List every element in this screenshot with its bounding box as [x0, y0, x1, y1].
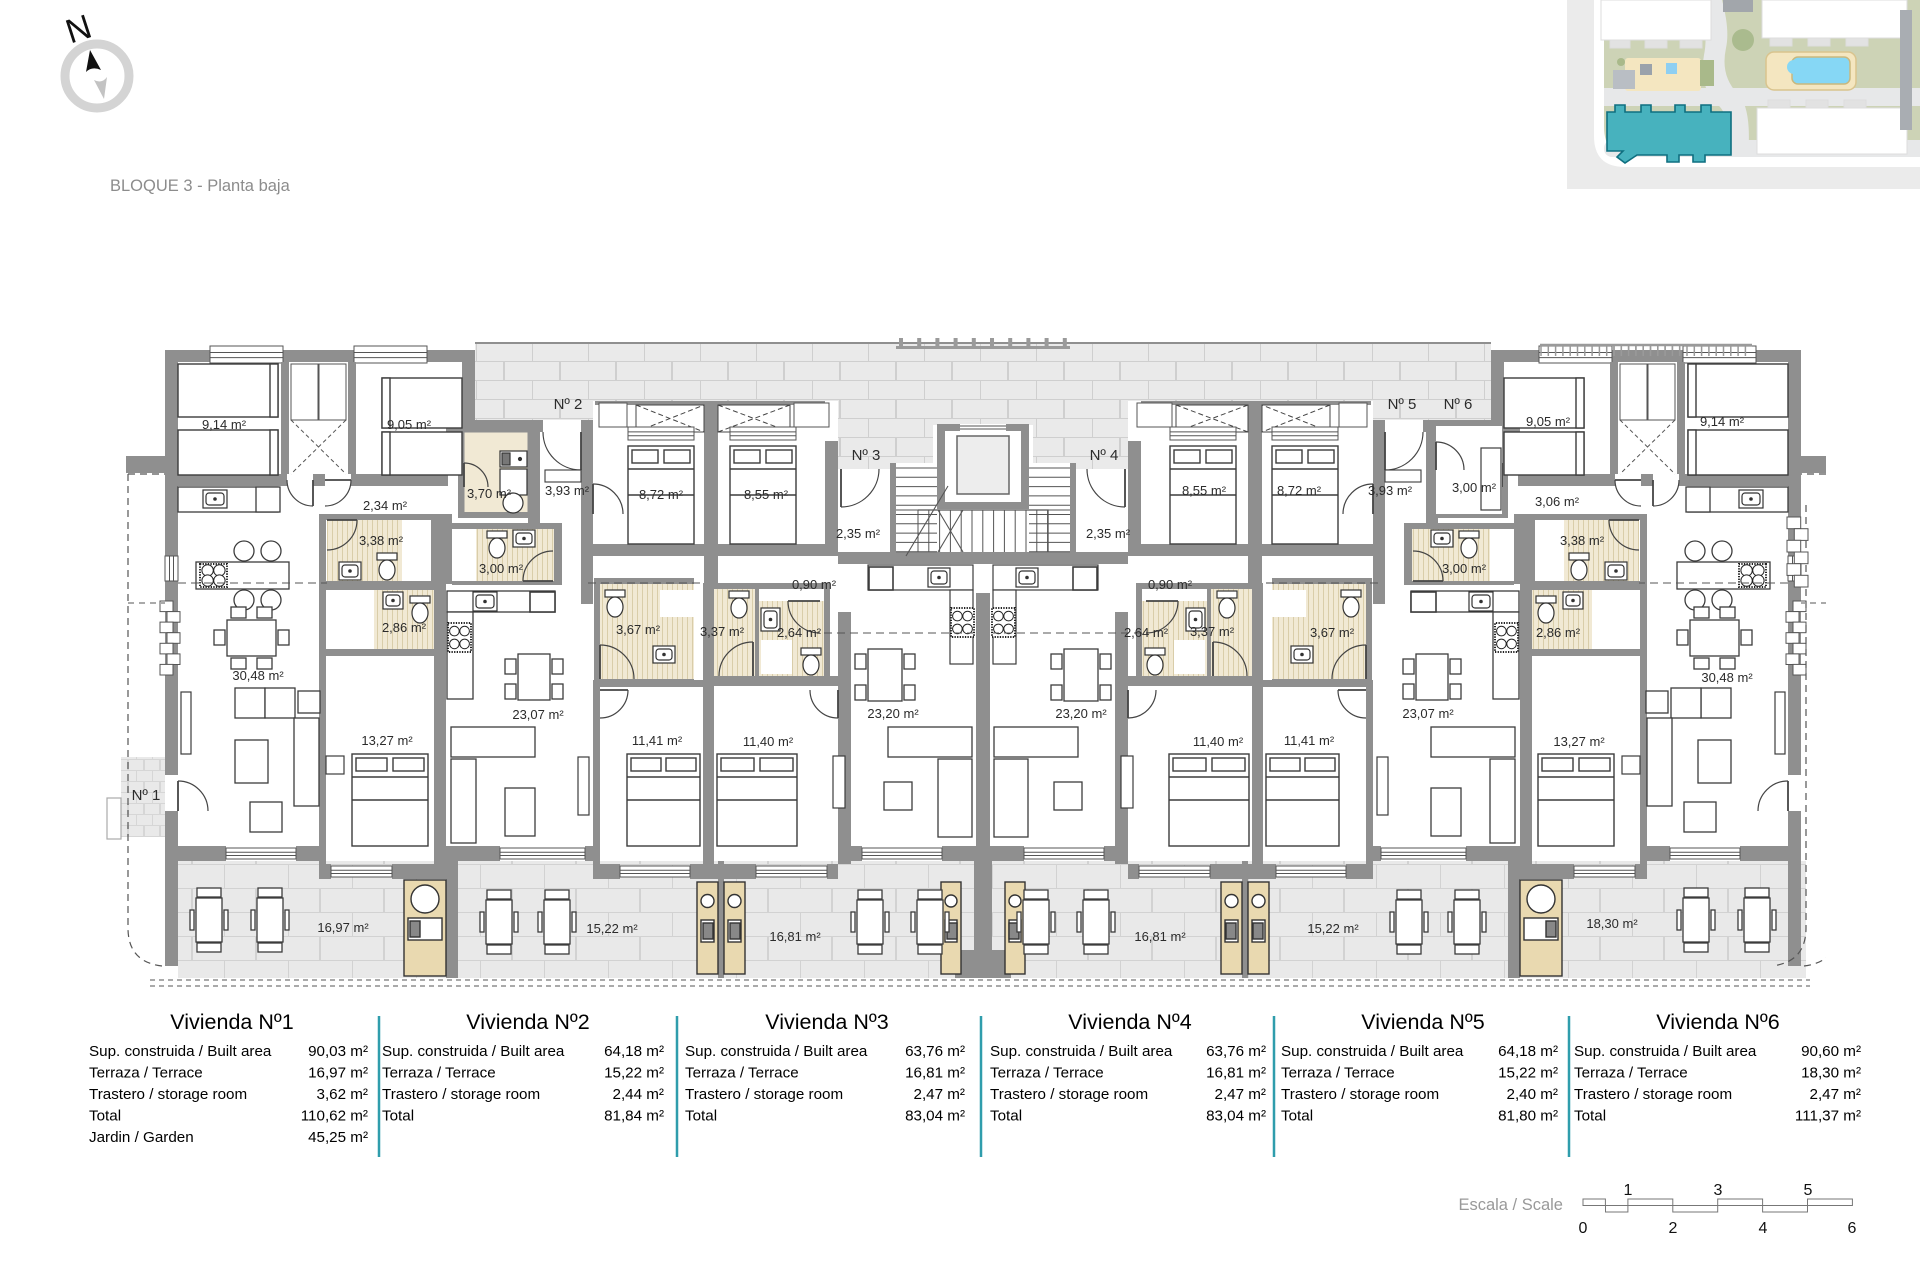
svg-text:Total: Total: [1574, 1108, 1606, 1125]
svg-text:3,70 m²: 3,70 m²: [467, 486, 512, 501]
svg-text:Vivienda Nº3: Vivienda Nº3: [765, 1010, 888, 1034]
svg-text:2,47 m²: 2,47 m²: [1810, 1086, 1862, 1103]
svg-text:Terraza / Terrace: Terraza / Terrace: [1574, 1065, 1688, 1082]
svg-text:23,07 m²: 23,07 m²: [1402, 706, 1454, 721]
svg-text:11,41 m²: 11,41 m²: [1284, 733, 1335, 748]
svg-text:2,47 m²: 2,47 m²: [1215, 1086, 1267, 1103]
svg-text:81,80 m²: 81,80 m²: [1498, 1108, 1558, 1125]
svg-text:8,55 m²: 8,55 m²: [744, 487, 789, 502]
svg-text:Trastero / storage room: Trastero / storage room: [990, 1086, 1148, 1103]
svg-text:Sup. construida / Built area: Sup. construida / Built area: [685, 1043, 868, 1060]
svg-text:Total: Total: [1281, 1108, 1313, 1125]
svg-text:Nº 1: Nº 1: [132, 787, 161, 804]
svg-text:Total: Total: [685, 1108, 717, 1125]
svg-text:11,40 m²: 11,40 m²: [743, 734, 794, 749]
svg-text:83,04 m²: 83,04 m²: [905, 1108, 965, 1125]
svg-text:1: 1: [1624, 1182, 1633, 1199]
svg-text:BLOQUE 3 - Planta baja: BLOQUE 3 - Planta baja: [110, 177, 291, 195]
svg-text:83,04 m²: 83,04 m²: [1206, 1108, 1266, 1125]
svg-text:Vivienda Nº5: Vivienda Nº5: [1361, 1010, 1484, 1034]
svg-text:Trastero / storage room: Trastero / storage room: [1281, 1086, 1439, 1103]
svg-text:3,00 m²: 3,00 m²: [479, 561, 524, 576]
svg-text:Jardin / Garden: Jardin / Garden: [89, 1129, 194, 1146]
svg-text:30,48 m²: 30,48 m²: [232, 668, 284, 683]
svg-text:Sup. construida / Built area: Sup. construida / Built area: [990, 1043, 1173, 1060]
svg-text:2,86 m²: 2,86 m²: [1536, 625, 1581, 640]
svg-text:16,81 m²: 16,81 m²: [1134, 929, 1186, 944]
svg-text:Escala / Scale: Escala / Scale: [1458, 1196, 1563, 1214]
svg-text:Trastero / storage room: Trastero / storage room: [89, 1086, 247, 1103]
svg-text:0,90 m²: 0,90 m²: [1148, 577, 1193, 592]
svg-text:Terraza / Terrace: Terraza / Terrace: [990, 1065, 1104, 1082]
svg-text:0,90 m²: 0,90 m²: [792, 577, 837, 592]
svg-text:16,81 m²: 16,81 m²: [905, 1065, 965, 1082]
svg-text:3,67 m²: 3,67 m²: [616, 622, 661, 637]
svg-text:3: 3: [1714, 1182, 1723, 1199]
svg-text:3,93 m²: 3,93 m²: [545, 483, 590, 498]
svg-text:3,37 m²: 3,37 m²: [1190, 624, 1235, 639]
svg-text:15,22 m²: 15,22 m²: [586, 921, 638, 936]
svg-text:Trastero / storage room: Trastero / storage room: [382, 1086, 540, 1103]
svg-text:Trastero / storage room: Trastero / storage room: [685, 1086, 843, 1103]
svg-text:Sup. construida / Built area: Sup. construida / Built area: [1281, 1043, 1464, 1060]
svg-text:64,18 m²: 64,18 m²: [604, 1043, 664, 1060]
svg-text:90,60 m²: 90,60 m²: [1801, 1043, 1861, 1060]
svg-text:13,27 m²: 13,27 m²: [1553, 734, 1605, 749]
svg-text:15,22 m²: 15,22 m²: [1307, 921, 1359, 936]
svg-text:Vivienda Nº6: Vivienda Nº6: [1656, 1010, 1779, 1034]
svg-text:Terraza / Terrace: Terraza / Terrace: [1281, 1065, 1395, 1082]
svg-text:Nº 5: Nº 5: [1388, 396, 1417, 413]
svg-text:3,67 m²: 3,67 m²: [1310, 625, 1355, 640]
svg-text:2,86 m²: 2,86 m²: [382, 620, 427, 635]
svg-text:8,55 m²: 8,55 m²: [1182, 483, 1227, 498]
svg-text:Terraza / Terrace: Terraza / Terrace: [89, 1065, 203, 1082]
svg-text:18,30 m²: 18,30 m²: [1586, 916, 1638, 931]
svg-text:Nº 2: Nº 2: [554, 396, 583, 413]
svg-text:Sup. construida / Built area: Sup. construida / Built area: [89, 1043, 272, 1060]
svg-text:Total: Total: [382, 1108, 414, 1125]
svg-text:13,27 m²: 13,27 m²: [361, 733, 413, 748]
svg-text:111,37 m²: 111,37 m²: [1795, 1108, 1861, 1125]
svg-text:18,30 m²: 18,30 m²: [1801, 1065, 1861, 1082]
svg-text:9,05 m²: 9,05 m²: [1526, 414, 1571, 429]
svg-text:9,14 m²: 9,14 m²: [1700, 414, 1745, 429]
svg-text:63,76 m²: 63,76 m²: [905, 1043, 965, 1060]
svg-text:2,44 m²: 2,44 m²: [613, 1086, 665, 1103]
svg-text:5: 5: [1804, 1182, 1813, 1199]
svg-text:Nº 6: Nº 6: [1444, 396, 1473, 413]
svg-text:64,18 m²: 64,18 m²: [1498, 1043, 1558, 1060]
svg-text:Vivienda Nº1: Vivienda Nº1: [170, 1010, 293, 1034]
svg-text:3,38 m²: 3,38 m²: [359, 533, 404, 548]
svg-text:6: 6: [1848, 1220, 1857, 1237]
svg-text:3,37 m²: 3,37 m²: [700, 624, 745, 639]
svg-text:3,00 m²: 3,00 m²: [1452, 480, 1497, 495]
svg-text:23,07 m²: 23,07 m²: [512, 707, 564, 722]
svg-text:Total: Total: [89, 1108, 121, 1125]
svg-text:Vivienda Nº2: Vivienda Nº2: [466, 1010, 589, 1034]
svg-text:8,72 m²: 8,72 m²: [639, 487, 684, 502]
svg-text:110,62 m²: 110,62 m²: [301, 1108, 368, 1125]
svg-text:3,38 m²: 3,38 m²: [1560, 533, 1605, 548]
svg-text:9,14 m²: 9,14 m²: [202, 417, 247, 432]
svg-text:23,20 m²: 23,20 m²: [1055, 706, 1107, 721]
svg-text:2,64 m²: 2,64 m²: [1124, 625, 1169, 640]
svg-text:2,34 m²: 2,34 m²: [363, 498, 408, 513]
svg-text:16,97 m²: 16,97 m²: [317, 920, 369, 935]
svg-text:30,48 m²: 30,48 m²: [1701, 670, 1753, 685]
svg-text:Vivienda Nº4: Vivienda Nº4: [1068, 1010, 1191, 1034]
svg-text:9,05 m²: 9,05 m²: [387, 417, 432, 432]
svg-text:N: N: [61, 8, 96, 52]
svg-text:3,06 m²: 3,06 m²: [1535, 494, 1580, 509]
svg-text:90,03 m²: 90,03 m²: [308, 1043, 368, 1060]
svg-text:81,84 m²: 81,84 m²: [604, 1108, 664, 1125]
svg-text:8,72 m²: 8,72 m²: [1277, 483, 1322, 498]
svg-text:2,40 m²: 2,40 m²: [1507, 1086, 1559, 1103]
svg-text:4: 4: [1759, 1220, 1768, 1237]
svg-text:Total: Total: [990, 1108, 1022, 1125]
svg-text:Trastero / storage room: Trastero / storage room: [1574, 1086, 1732, 1103]
svg-text:Sup. construida / Built area: Sup. construida / Built area: [1574, 1043, 1757, 1060]
svg-text:11,40 m²: 11,40 m²: [1193, 734, 1244, 749]
svg-text:15,22 m²: 15,22 m²: [1498, 1065, 1558, 1082]
svg-text:Nº 3: Nº 3: [852, 447, 881, 464]
svg-text:0: 0: [1579, 1220, 1588, 1237]
svg-text:23,20 m²: 23,20 m²: [867, 706, 919, 721]
svg-text:2,64 m²: 2,64 m²: [777, 625, 822, 640]
svg-text:15,22 m²: 15,22 m²: [604, 1065, 664, 1082]
svg-text:Terraza / Terrace: Terraza / Terrace: [685, 1065, 799, 1082]
svg-text:3,93 m²: 3,93 m²: [1368, 483, 1413, 498]
svg-text:Nº 4: Nº 4: [1090, 447, 1119, 464]
svg-text:2: 2: [1669, 1220, 1678, 1237]
svg-text:11,41 m²: 11,41 m²: [632, 733, 683, 748]
svg-text:2,35 m²: 2,35 m²: [836, 526, 881, 541]
svg-text:2,35 m²: 2,35 m²: [1086, 526, 1131, 541]
svg-text:45,25 m²: 45,25 m²: [308, 1129, 368, 1146]
svg-text:16,97 m²: 16,97 m²: [308, 1065, 368, 1082]
svg-text:63,76 m²: 63,76 m²: [1206, 1043, 1266, 1060]
svg-text:3,62 m²: 3,62 m²: [317, 1086, 369, 1103]
svg-text:3,00 m²: 3,00 m²: [1442, 561, 1487, 576]
svg-text:2,47 m²: 2,47 m²: [914, 1086, 966, 1103]
svg-text:Terraza / Terrace: Terraza / Terrace: [382, 1065, 496, 1082]
svg-text:16,81 m²: 16,81 m²: [1206, 1065, 1266, 1082]
svg-text:16,81 m²: 16,81 m²: [769, 929, 821, 944]
svg-text:Sup. construida / Built area: Sup. construida / Built area: [382, 1043, 565, 1060]
